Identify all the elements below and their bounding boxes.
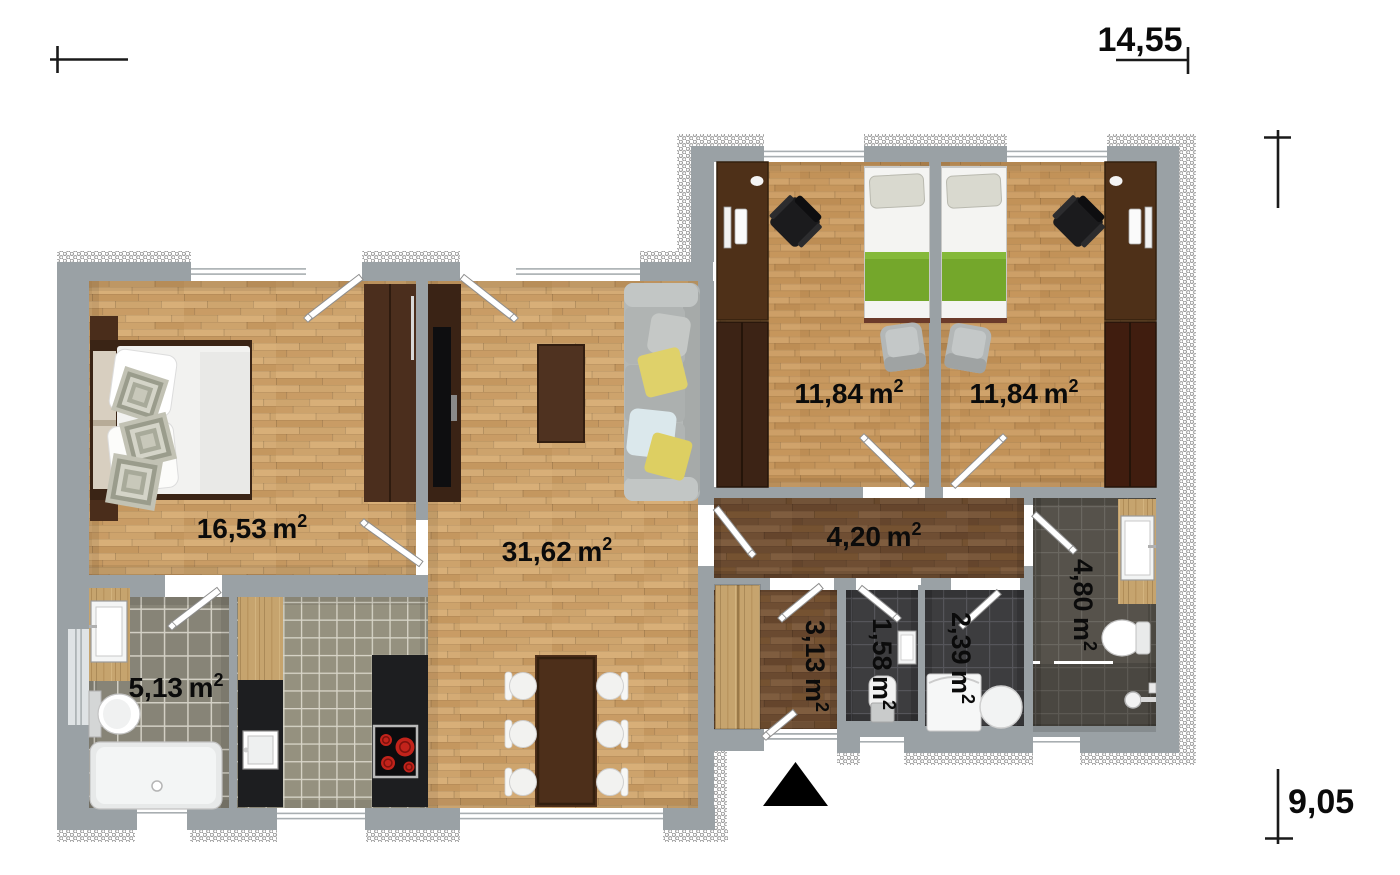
svg-text:14,55: 14,55: [1097, 21, 1182, 59]
svg-text:3,13 m2: 3,13 m2: [800, 620, 832, 712]
svg-text:4,20 m2: 4,20 m2: [826, 519, 921, 552]
svg-text:9,05: 9,05: [1288, 783, 1354, 821]
svg-text:31,62 m2: 31,62 m2: [502, 534, 613, 567]
svg-text:16,53 m2: 16,53 m2: [197, 511, 308, 544]
svg-text:4,80 m2: 4,80 m2: [1068, 559, 1100, 651]
svg-text:5,13 m2: 5,13 m2: [128, 670, 223, 703]
svg-text:11,84 m2: 11,84 m2: [794, 376, 903, 409]
svg-text:11,84 m2: 11,84 m2: [969, 376, 1078, 409]
svg-text:1,58 m2: 1,58 m2: [867, 618, 899, 710]
svg-text:2,39 m2: 2,39 m2: [946, 612, 978, 704]
